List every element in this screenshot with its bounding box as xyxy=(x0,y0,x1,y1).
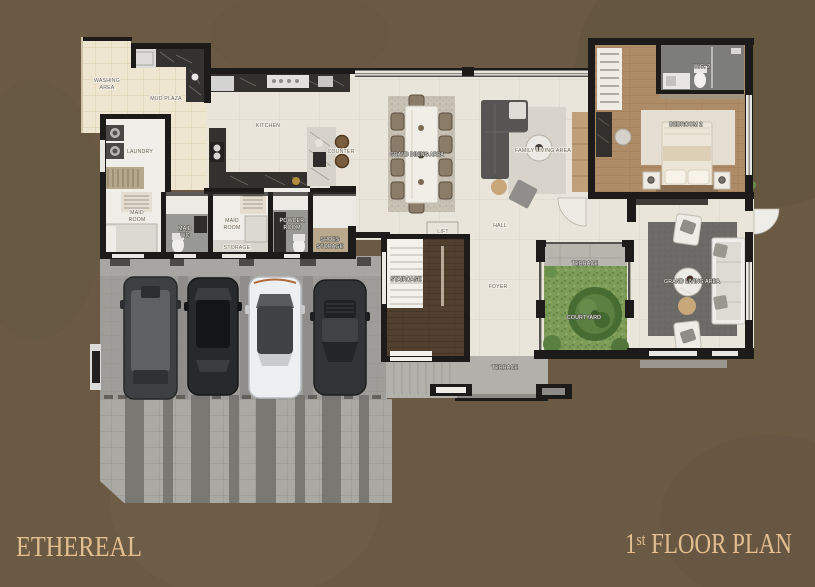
svg-text:BEDROOM 2: BEDROOM 2 xyxy=(670,122,703,128)
svg-text:COUNTER: COUNTER xyxy=(327,149,354,155)
svg-text:POWDER: POWDER xyxy=(280,218,305,224)
svg-text:FOYER: FOYER xyxy=(489,284,508,290)
svg-text:1st FLOOR PLAN: 1st FLOOR PLAN xyxy=(625,528,792,560)
svg-text:WC: WC xyxy=(180,233,189,239)
svg-text:LAUNDRY: LAUNDRY xyxy=(127,149,153,155)
svg-text:ROOM: ROOM xyxy=(129,217,146,223)
svg-text:HALL: HALL xyxy=(493,223,507,229)
svg-text:AREA: AREA xyxy=(100,85,115,91)
svg-text:LIFT: LIFT xyxy=(437,229,449,235)
svg-text:WASHING: WASHING xyxy=(94,78,120,84)
svg-text:GRAND LIVING AREA: GRAND LIVING AREA xyxy=(664,279,720,285)
svg-text:ROOM: ROOM xyxy=(224,225,241,231)
svg-text:STORAGE: STORAGE xyxy=(317,244,344,250)
svg-text:TERRACE: TERRACE xyxy=(572,261,599,267)
svg-text:ETHEREAL: ETHEREAL xyxy=(16,531,142,563)
svg-text:TERRACE: TERRACE xyxy=(492,365,519,371)
svg-text:SHOES: SHOES xyxy=(320,237,340,243)
svg-text:MUD PLAZA: MUD PLAZA xyxy=(150,96,182,102)
svg-text:MAID: MAID xyxy=(178,226,192,232)
svg-text:ROOM: ROOM xyxy=(284,225,301,231)
svg-text:MAID: MAID xyxy=(130,210,144,216)
svg-text:STAIRCASE: STAIRCASE xyxy=(391,277,422,283)
svg-text:GRAND DINING AREA: GRAND DINING AREA xyxy=(390,152,444,158)
svg-text:MAID: MAID xyxy=(225,218,239,224)
svg-text:KITCHEN: KITCHEN xyxy=(256,123,280,129)
svg-text:FAMILY LIVING AREA: FAMILY LIVING AREA xyxy=(515,148,571,154)
svg-text:W.C. 2: W.C. 2 xyxy=(694,64,711,70)
svg-text:COURTYARD: COURTYARD xyxy=(567,315,601,321)
svg-text:STORAGE: STORAGE xyxy=(224,245,251,251)
